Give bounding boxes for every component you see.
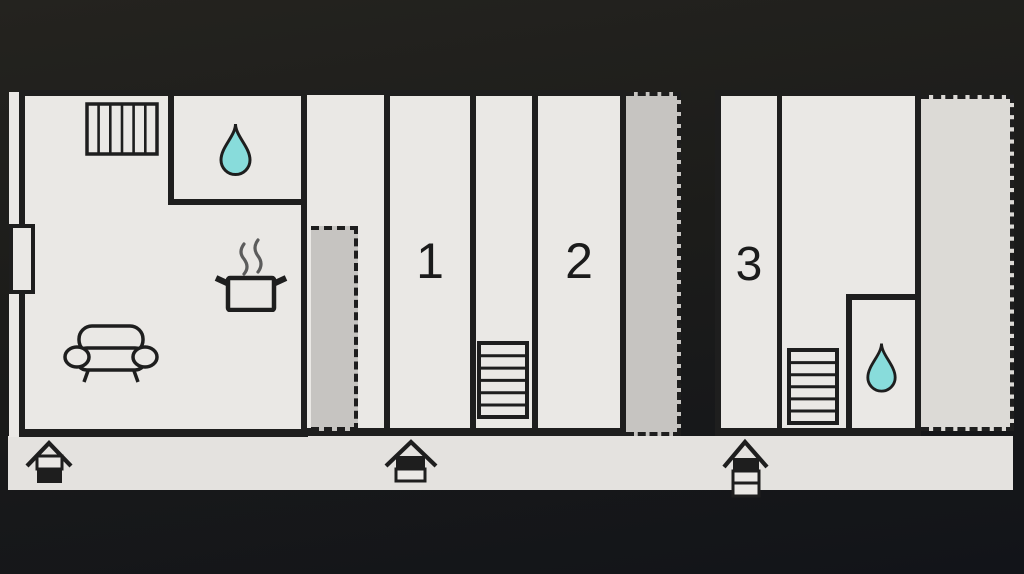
entrance-icon-left [25,439,73,485]
bathroom-left-wall [168,96,174,205]
water-drop-icon-right [865,340,898,397]
bathroom-right-top-wall [846,294,915,300]
bathroom-right-left-wall [846,294,852,428]
unit-1-label: 1 [390,236,470,286]
ground-strip [8,436,1013,490]
terrace-marker-2 [626,92,681,436]
entrance-icon-right [722,437,769,498]
unit-3-label: 3 [721,241,777,289]
floor-plan: 1 2 3 [0,0,1024,574]
entrance-icon-middle [384,438,438,483]
window-marker [9,224,35,294]
divider-wall-a [470,96,476,428]
middle-building: 1 2 [384,90,626,436]
water-drop-icon [218,122,253,179]
stairs-icon-right [787,348,839,425]
terrace-marker-1 [311,226,358,431]
sofa-icon [63,324,159,384]
bathroom-bottom-wall [168,199,301,205]
unit-2-label: 2 [538,236,620,286]
left-apartment [19,90,308,437]
stairs-icon-middle [477,341,529,419]
right-building: 3 [715,90,921,436]
cooking-pot-icon [212,236,290,312]
terrace-marker-3 [921,95,1014,431]
radiator-icon [85,102,159,156]
divider-wall-c [777,96,782,428]
